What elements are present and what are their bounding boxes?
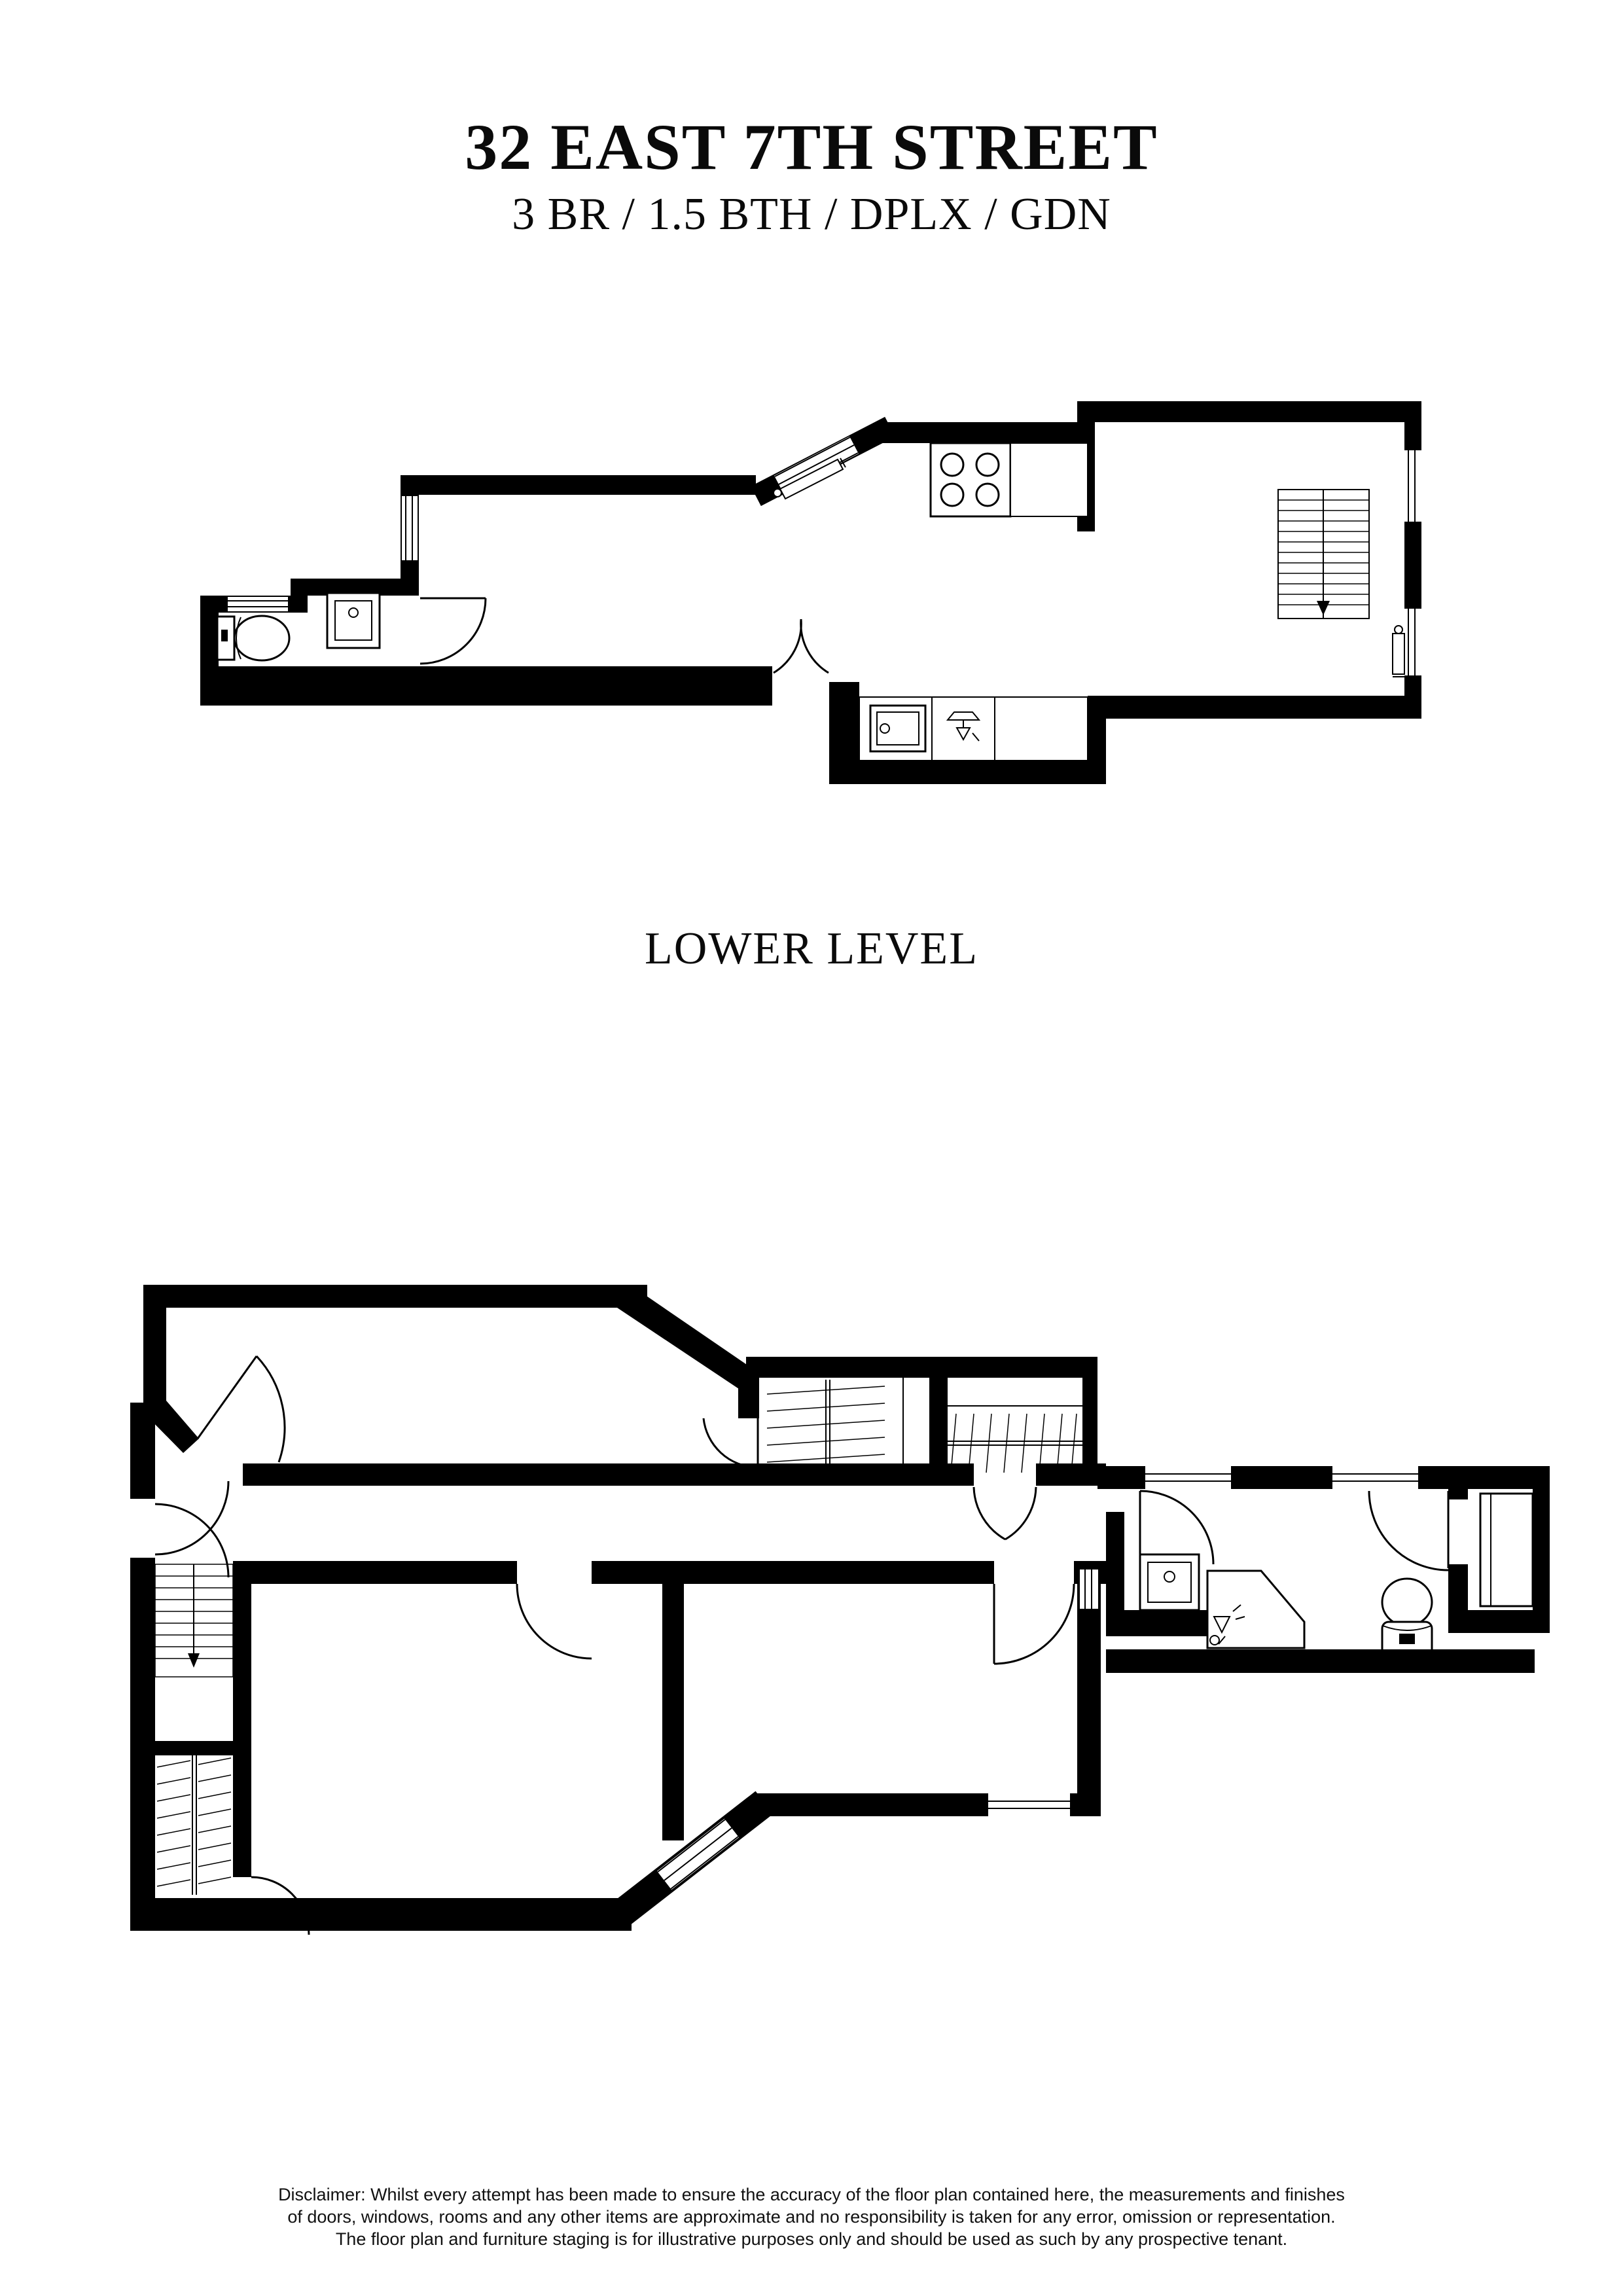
window [988,1795,1070,1815]
wall [130,1898,632,1931]
wall [753,1793,988,1816]
wall [1448,1489,1468,1499]
door-arc [1369,1491,1448,1570]
corner-shower-icon [1207,1571,1304,1648]
kitchen-counter [1010,443,1088,516]
wall [233,1561,517,1584]
wall [200,666,772,706]
wall [130,1403,155,1499]
wardrobe-hanging-icon [948,1406,1082,1473]
window [1145,1467,1231,1488]
wall [1418,1466,1550,1489]
disclaimer-line-2: of doors, windows, rooms and any other i… [287,2207,1335,2227]
wall [143,1285,647,1308]
upper-floor-plan [200,401,1421,784]
wall [1533,1466,1550,1633]
toilet-icon [217,616,289,660]
wall [1124,1610,1207,1636]
vanity-sink-icon [1140,1554,1199,1610]
toilet-icon [1382,1579,1432,1656]
sink-icon [327,593,380,648]
wall [829,682,859,762]
door-arc [1140,1491,1213,1564]
wall-diagonal [615,1285,759,1393]
double-swing-door [974,1487,1036,1539]
built-in-wardrobe-icon [1480,1494,1533,1606]
stairs-down-icon [155,1564,233,1677]
wall [746,1357,1097,1378]
window [1404,450,1421,522]
wall [233,1561,251,1741]
wall [1036,1463,1106,1486]
wall [1077,401,1421,422]
page-subtitle: 3 BR / 1.5 BTH / DPLX / GDN [512,189,1111,240]
wall [1448,1564,1468,1617]
wall [130,1558,155,1931]
radiator-icon [1393,626,1406,677]
page-title: 32 EAST 7TH STREET [465,111,1158,183]
wall [829,761,1106,784]
wall [662,1561,684,1840]
wall [143,1285,166,1403]
wall [1106,696,1421,719]
door-arc [420,598,486,664]
window-diagonal [775,437,858,492]
stairs-down-icon [1278,490,1369,619]
door-arc [517,1584,592,1659]
wall [929,1378,948,1475]
wall [738,1463,974,1486]
wall [592,1561,994,1584]
floorplan-page: 32 EAST 7TH STREET 3 BR / 1.5 BTH / DPLX… [0,0,1623,2296]
stove-icon [931,443,1010,516]
wall [401,475,756,495]
wall [233,1755,251,1877]
wall [243,1463,738,1486]
entry-double-swing-door [155,1481,228,1577]
window [1080,1570,1098,1609]
window [1404,609,1421,675]
disclaimer: Disclaimer: Whilst every attempt has bee… [278,2185,1345,2249]
kitchen-sink-icon [870,706,925,751]
wall [1106,1649,1535,1673]
wall [738,1371,759,1418]
window [228,597,288,611]
disclaimer-line-3: The floor plan and furniture staging is … [336,2229,1287,2249]
lower-floor-plan [130,1285,1550,1935]
wall [291,579,308,613]
door-arc [994,1584,1074,1664]
wall [1097,1466,1145,1489]
door-arc [704,1418,758,1467]
wardrobe-hanging-icon [767,1378,903,1475]
wall [1106,1512,1124,1636]
door-arc [198,1356,285,1462]
wall [882,422,1095,443]
window [402,496,418,560]
level-label: LOWER LEVEL [645,924,978,974]
wall [155,1741,251,1755]
wall [1231,1466,1332,1489]
disclaimer-line-1: Disclaimer: Whilst every attempt has bee… [278,2185,1345,2204]
window [1332,1467,1418,1488]
under-stair-closet-icon [157,1755,231,1895]
double-swing-door [774,619,829,673]
